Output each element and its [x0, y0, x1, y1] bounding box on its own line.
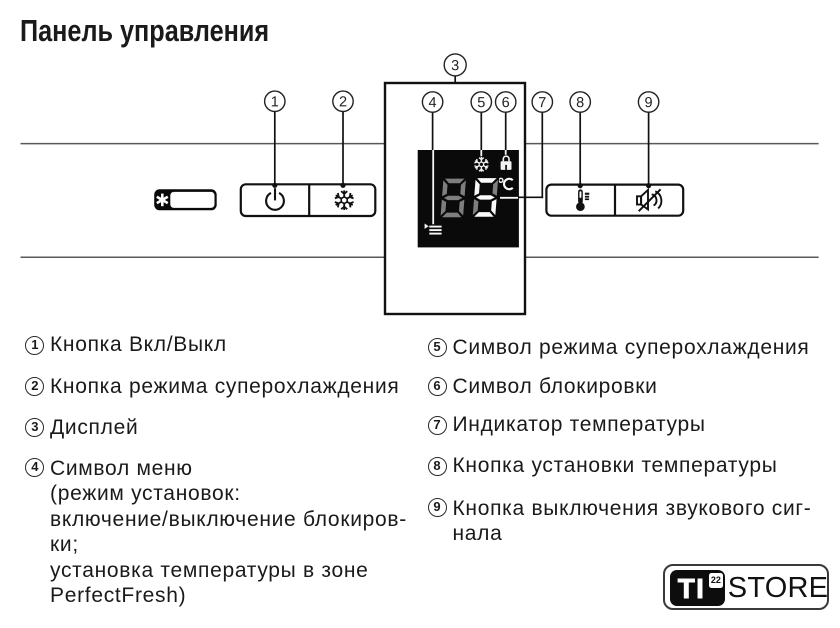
- svg-text:9: 9: [645, 95, 653, 111]
- svg-text:1: 1: [271, 94, 279, 110]
- svg-text:2: 2: [339, 94, 347, 110]
- svg-text:5: 5: [477, 95, 485, 111]
- svg-text:8: 8: [576, 95, 584, 111]
- svg-text:3: 3: [451, 58, 459, 74]
- svg-text:7: 7: [538, 95, 546, 111]
- svg-text:4: 4: [429, 95, 437, 111]
- svg-text:6: 6: [502, 95, 510, 111]
